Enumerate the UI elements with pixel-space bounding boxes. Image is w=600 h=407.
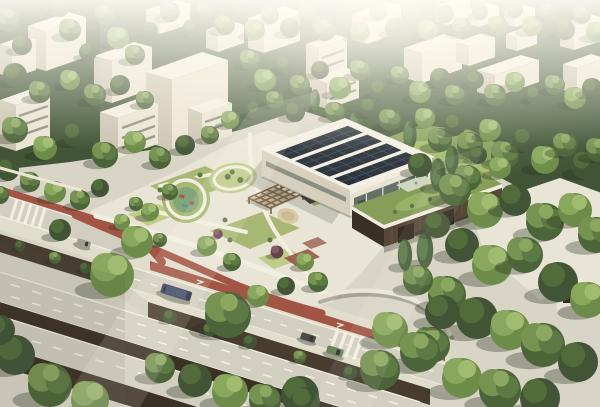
light-overlays <box>0 0 600 407</box>
render-canvas <box>0 0 600 407</box>
aerial-architectural-rendering <box>0 0 600 407</box>
